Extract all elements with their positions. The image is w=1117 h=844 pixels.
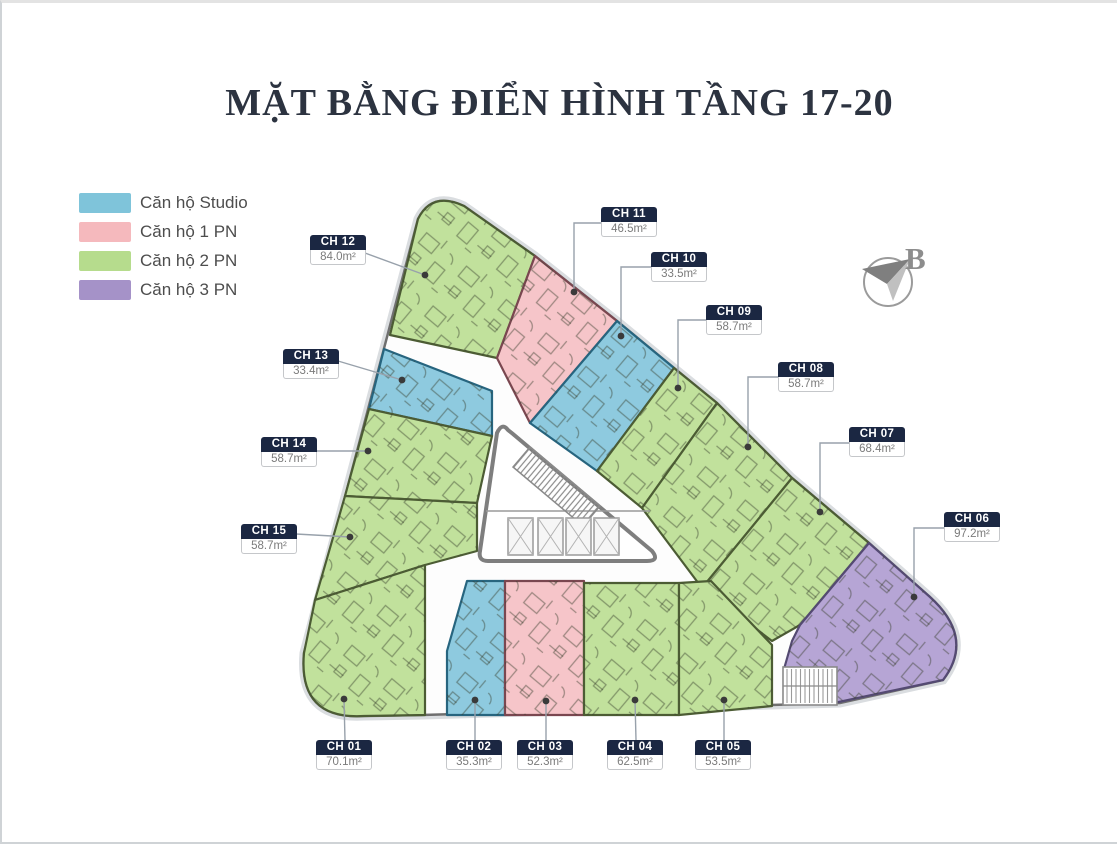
callout-line-ch11	[574, 223, 603, 292]
unit-code: CH 02	[446, 740, 502, 755]
unit-area: 58.7m²	[706, 320, 762, 335]
2pn-color-swatch	[79, 251, 131, 271]
elevator-bank	[508, 518, 619, 555]
legend-label: Căn hộ Studio	[140, 193, 248, 213]
unit-area: 33.5m²	[651, 267, 707, 282]
unit-detail-ch04	[584, 583, 679, 715]
callout-dot-ch09	[675, 385, 682, 392]
floorplan-drawing	[2, 3, 1117, 844]
page-title: MẶT BẰNG ĐIỂN HÌNH TẦNG 17-20	[2, 81, 1117, 125]
unit-area: 46.5m²	[601, 222, 657, 237]
unit-code: CH 10	[651, 252, 707, 267]
unit-code: CH 11	[601, 207, 657, 222]
unit-label-ch02: CH 02 35.3m²	[446, 740, 502, 770]
unit-label-ch04: CH 04 62.5m²	[607, 740, 663, 770]
legend-label: Căn hộ 1 PN	[140, 222, 237, 242]
unit-code: CH 07	[849, 427, 905, 442]
legend: Căn hộ Studio Căn hộ 1 PN Căn hộ 2 PN Că…	[79, 193, 248, 309]
unit-area: 58.7m²	[241, 539, 297, 554]
unit-area: 33.4m²	[283, 364, 339, 379]
unit-label-ch09: CH 09 58.7m²	[706, 305, 762, 335]
callout-dot-ch14	[365, 448, 372, 455]
unit-area: 70.1m²	[316, 755, 372, 770]
unit-label-ch12: CH 12 84.0m²	[310, 235, 366, 265]
unit-label-ch13: CH 13 33.4m²	[283, 349, 339, 379]
callout-dot-ch04	[632, 697, 639, 704]
compass-north-label: B	[905, 241, 926, 277]
unit-code: CH 05	[695, 740, 751, 755]
unit-area: 68.4m²	[849, 442, 905, 457]
unit-label-ch11: CH 11 46.5m²	[601, 207, 657, 237]
legend-label: Căn hộ 3 PN	[140, 280, 237, 300]
callout-dot-ch15	[347, 534, 354, 541]
unit-label-ch07: CH 07 68.4m²	[849, 427, 905, 457]
unit-code: CH 09	[706, 305, 762, 320]
callout-dot-ch12	[422, 272, 429, 279]
unit-area: 62.5m²	[607, 755, 663, 770]
unit-area: 35.3m²	[446, 755, 502, 770]
unit-code: CH 15	[241, 524, 297, 539]
unit-label-ch06: CH 06 97.2m²	[944, 512, 1000, 542]
callout-dot-ch05	[721, 697, 728, 704]
unit-area: 84.0m²	[310, 250, 366, 265]
callout-line-ch04	[635, 700, 636, 740]
unit-area: 58.7m²	[261, 452, 317, 467]
unit-code: CH 01	[316, 740, 372, 755]
callout-dot-ch07	[817, 509, 824, 516]
floorplan-page: MẶT BẰNG ĐIỂN HÌNH TẦNG 17-20 Căn hộ Stu…	[0, 0, 1117, 844]
callout-dot-ch02	[472, 697, 479, 704]
unit-code: CH 03	[517, 740, 573, 755]
unit-label-ch08: CH 08 58.7m²	[778, 362, 834, 392]
unit-label-ch14: CH 14 58.7m²	[261, 437, 317, 467]
unit-label-ch05: CH 05 53.5m²	[695, 740, 751, 770]
fire-staircase	[783, 667, 837, 705]
callout-dot-ch11	[571, 289, 578, 296]
unit-area: 97.2m²	[944, 527, 1000, 542]
callout-dot-ch01	[341, 696, 348, 703]
unit-label-ch15: CH 15 58.7m²	[241, 524, 297, 554]
unit-area: 58.7m²	[778, 377, 834, 392]
callout-dot-ch06	[911, 594, 918, 601]
unit-area: 53.5m²	[695, 755, 751, 770]
callout-dot-ch10	[618, 333, 625, 340]
legend-item-2pn: Căn hộ 2 PN	[79, 251, 248, 271]
legend-item-3pn: Căn hộ 3 PN	[79, 280, 248, 300]
unit-code: CH 08	[778, 362, 834, 377]
unit-code: CH 12	[310, 235, 366, 250]
1pn-color-swatch	[79, 222, 131, 242]
unit-code: CH 04	[607, 740, 663, 755]
unit-label-ch03: CH 03 52.3m²	[517, 740, 573, 770]
unit-area: 52.3m²	[517, 755, 573, 770]
unit-detail-ch03	[505, 581, 584, 715]
callout-dot-ch03	[543, 698, 550, 705]
unit-label-ch10: CH 10 33.5m²	[651, 252, 707, 282]
callout-line-ch01	[344, 699, 345, 740]
unit-code: CH 06	[944, 512, 1000, 527]
callout-dot-ch08	[745, 444, 752, 451]
unit-code: CH 13	[283, 349, 339, 364]
legend-item-studio: Căn hộ Studio	[79, 193, 248, 213]
legend-label: Căn hộ 2 PN	[140, 251, 237, 271]
callout-dot-ch13	[399, 377, 406, 384]
unit-label-ch01: CH 01 70.1m²	[316, 740, 372, 770]
legend-item-1pn: Căn hộ 1 PN	[79, 222, 248, 242]
3pn-color-swatch	[79, 280, 131, 300]
studio-color-swatch	[79, 193, 131, 213]
unit-code: CH 14	[261, 437, 317, 452]
